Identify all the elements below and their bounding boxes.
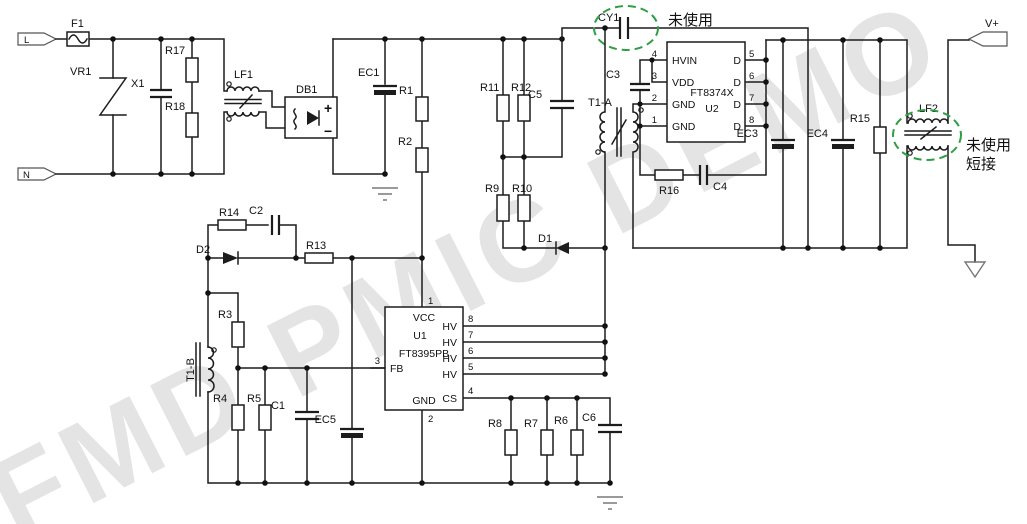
u2-pin1-num: 1 (652, 115, 657, 126)
u2-pin8-num: 8 (749, 115, 754, 126)
label-r8: R8 (488, 418, 502, 430)
label-t1a: T1-A (588, 97, 613, 109)
u1-pin-gnd: GND (412, 395, 436, 407)
label-db1-minus: − (324, 123, 332, 139)
resistor-r17 (186, 58, 198, 82)
u2-pin-d6: D (733, 77, 741, 89)
u1-pin-hv7: HV (442, 337, 457, 349)
label-ec1: EC1 (358, 67, 379, 79)
terminal-line-label: L (24, 35, 29, 46)
label-c6: C6 (582, 412, 596, 424)
u2-pin-hvin: HVIN (672, 55, 697, 67)
label-t1b: T1-B (185, 358, 197, 382)
u2-part-label: FT8374X (690, 87, 733, 99)
u2-pin3-num: 3 (652, 71, 657, 82)
bridge-rectifier: + − DB1 (259, 39, 385, 174)
u1-pin5-num: 5 (468, 362, 473, 373)
schematic-canvas: FMD PMIC DEMO L N F1 VR1 X1 R17 R18 LF1 (0, 0, 1027, 524)
label-r15: R15 (850, 113, 870, 125)
terminal-vout (969, 32, 1007, 46)
label-db1: DB1 (296, 84, 317, 96)
choke-lf1 (225, 82, 261, 121)
resistor-r13 (305, 253, 333, 263)
schematic-page: FMD PMIC DEMO L N F1 VR1 X1 R17 R18 LF1 (0, 0, 1027, 524)
label-r10: R10 (512, 183, 532, 195)
label-c1: C1 (271, 400, 285, 412)
varistor-vr1 (100, 78, 126, 115)
u2-pin-gnd: GND (672, 99, 696, 111)
label-lf2: LF2 (919, 103, 938, 115)
label-r14: R14 (219, 207, 239, 219)
label-c4: C4 (713, 181, 727, 193)
label-r6: R6 (554, 415, 568, 427)
u1-pin3-num: 3 (375, 356, 380, 367)
u2-pin6-num: 6 (749, 71, 754, 82)
note-cy1-unused: 未使用 (668, 12, 713, 29)
u1-pin2-num: 2 (428, 414, 433, 425)
label-r9: R9 (485, 183, 499, 195)
cap-c6 (598, 425, 622, 432)
label-d1: D1 (538, 233, 552, 245)
u1-pin1-num: 1 (428, 296, 433, 307)
label-r17: R17 (165, 45, 185, 57)
u2-pin2-num: 2 (652, 93, 657, 104)
label-d2: D2 (196, 244, 210, 256)
label-f1: F1 (71, 18, 84, 30)
label-lf1: LF1 (234, 69, 253, 81)
label-r2: R2 (398, 136, 412, 148)
cap-cy1 (620, 17, 628, 39)
u1-pin8-num: 8 (468, 314, 473, 325)
label-r3: R3 (218, 309, 232, 321)
u1-pin-hv5: HV (442, 369, 457, 381)
u1-pin-hv6: HV (442, 353, 457, 365)
resistor-r1 (416, 97, 428, 121)
resistor-r14 (218, 220, 246, 230)
diode-d2 (223, 252, 238, 264)
label-db1-plus: + (324, 100, 332, 116)
u2-pin-d7: D (733, 99, 741, 111)
input-stage: L N F1 VR1 X1 R17 R18 LF1 (18, 18, 261, 181)
label-cy1: CY1 (598, 12, 619, 24)
label-r5: R5 (247, 393, 261, 405)
output-ground-icon (965, 262, 985, 277)
cap-c3 (630, 84, 650, 90)
ground-c6-icon (597, 497, 623, 509)
u1-pin-vcc: VCC (413, 312, 436, 324)
label-ec5: EC5 (315, 414, 336, 426)
u2-pin-d5: D (733, 55, 741, 67)
resistor-r7 (541, 430, 553, 455)
note-lf2-line1: 未使用 (966, 137, 1011, 154)
label-c5: C5 (528, 89, 542, 101)
choke-lf2 (905, 114, 951, 155)
u1-pin6-num: 6 (468, 346, 473, 357)
resistor-r3 (232, 322, 244, 347)
resistor-r6 (571, 430, 583, 455)
u2-ref-label: U2 (705, 103, 719, 115)
label-r16: R16 (659, 185, 679, 197)
label-c2: C2 (249, 205, 263, 217)
resistor-r8 (505, 430, 517, 455)
u1-pin7-num: 7 (468, 330, 473, 341)
resistor-r15 (874, 127, 886, 153)
u1-pin4-num: 4 (468, 386, 473, 397)
ground-ec1-icon (372, 188, 398, 200)
label-r11: R11 (480, 82, 499, 94)
resistor-r4 (232, 405, 244, 430)
cap-x1 (150, 90, 172, 97)
label-ec4: EC4 (807, 128, 828, 140)
label-vr1: VR1 (70, 66, 91, 78)
label-r7: R7 (524, 418, 538, 430)
resistor-r18 (186, 113, 198, 137)
label-ec3: EC3 (737, 128, 758, 140)
resistor-r2 (416, 148, 428, 172)
label-c3: C3 (606, 69, 620, 81)
u1-pin-cs: CS (442, 393, 457, 405)
resistor-r11 (497, 95, 509, 121)
cap-c2 (272, 215, 279, 235)
label-r18: R18 (165, 101, 185, 113)
u1-pin-fb: FB (390, 363, 403, 375)
note-lf2-line2: 短接 (966, 156, 996, 173)
u1-ref-label: U1 (413, 330, 427, 342)
resistor-r10 (518, 195, 530, 221)
u2-pin5-num: 5 (749, 49, 754, 60)
resistor-r16 (655, 170, 683, 180)
u2-pin-gnd2: GND (672, 121, 696, 133)
resistor-r9 (497, 195, 509, 221)
label-x1: X1 (131, 78, 144, 90)
terminal-vout-label: V+ (985, 18, 999, 30)
label-r4: R4 (213, 393, 227, 405)
u2-pin7-num: 7 (749, 93, 754, 104)
watermark-text: FMD PMIC DEMO (0, 0, 963, 524)
cap-c5 (550, 101, 574, 108)
label-r1: R1 (399, 85, 413, 97)
label-r13: R13 (306, 240, 326, 252)
terminal-neutral-label: N (23, 170, 30, 181)
u1-pin-hv8: HV (442, 321, 457, 333)
resistor-r5 (259, 405, 271, 430)
